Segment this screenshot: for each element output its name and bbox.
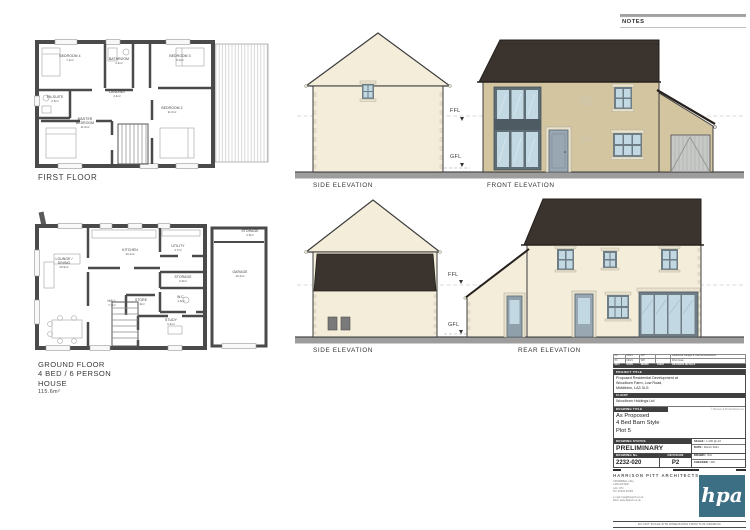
rear-leanto-door (504, 293, 525, 337)
drawing-status-value: PRELIMINARY (614, 444, 691, 453)
rear-elevation-label: REAR ELEVATION (518, 347, 581, 354)
rear-door (572, 291, 596, 337)
garage-roof-plane (314, 254, 436, 291)
room-label: LOUNGE / DINING20.9m² (51, 258, 77, 269)
ground-floor-plan-drawing (35, 212, 267, 351)
drawing-no-value: 2232-020 (614, 458, 659, 466)
front-elevation-drawing (477, 40, 717, 172)
ffl-label-mid: FFL (448, 272, 458, 278)
checked-cell: CHECKED : SW (692, 460, 745, 465)
project-title-text: Proposed Residential Development at Wood… (614, 375, 745, 394)
front-door (546, 127, 571, 172)
side-elevation-mid-drawing (305, 200, 442, 337)
revision-header-row: REV DATE DRWN CHKD REVISION DETAILS (614, 363, 746, 367)
side-opening (328, 317, 337, 330)
room-label: STORAGE0.9m² (170, 276, 196, 283)
room-label: BEDROOM 47.1m² (53, 55, 87, 62)
two-storey-glazing (494, 87, 541, 170)
front-window-first-floor (612, 84, 634, 112)
room-label: HALL7.4m² (101, 300, 123, 307)
room-label: EN-SUITE2.6m² (42, 96, 68, 103)
first-floor-title: FIRST FLOOR (38, 173, 97, 182)
hpa-logo: hpa (699, 475, 745, 517)
gfl-marker-top (460, 163, 464, 167)
gable-window (360, 81, 376, 102)
fold-marks (613, 469, 746, 473)
gf-total-area: 115.6m² (38, 389, 111, 396)
gf-title-line2: 4 BED / 6 PERSON (38, 369, 111, 378)
garage-plan (212, 228, 266, 346)
main-roof (479, 40, 659, 82)
copyright-note: © Harrison & Pitt Architects Ltd (668, 407, 745, 412)
side-opening (341, 317, 350, 330)
rear-roof (524, 199, 701, 245)
client-name: Woodburn Holdings Ltd (614, 398, 745, 406)
room-label: STUDY6.4m² (160, 319, 182, 326)
drawing-title-text: As Proposed 4 Bed Barn Style Plot 5 (614, 412, 745, 438)
side-elevation-top-label: SIDE ELEVATION (313, 182, 373, 189)
gf-title-line3: HOUSE (38, 379, 111, 388)
notes-title: NOTES (622, 19, 644, 25)
gfl-label-mid: GFL (448, 322, 459, 328)
room-label: W.C.1.5m² (171, 296, 191, 303)
date-cell: DATE : March 2021 (692, 445, 745, 450)
room-label: STORE1.9m² (130, 299, 152, 306)
rear-gf-window (605, 292, 631, 321)
room-label: MASTER BEDROOM11.9m² (70, 118, 100, 129)
rear-bifold-doors (637, 288, 700, 337)
gfl-label-top: GFL (450, 154, 461, 160)
room-label: LANDING4.4m² (104, 91, 130, 98)
gfl-marker-mid (459, 330, 463, 334)
architect-block: HARRISON PITT ARCHITECTS CROMWELL HILL L… (613, 473, 746, 519)
flue (39, 212, 47, 226)
room-label: STORAGE2.8m² (237, 230, 263, 237)
front-window-ground-floor (611, 130, 644, 160)
gf-title-line1: GROUND FLOOR (38, 360, 111, 369)
side-elevation-top-drawing (305, 33, 452, 172)
ground-floor-title: GROUND FLOOR 4 BED / 6 PERSON HOUSE 115.… (38, 360, 111, 396)
room-label: KITCHEN10.4m² (117, 249, 143, 256)
title-block: P2 03/21 WH - Additional Garage & Intern… (613, 354, 746, 528)
front-garage (657, 90, 717, 172)
room-label: BATHROOM4.4m² (106, 58, 132, 65)
room-label: BEDROOM 39.0m² (163, 55, 197, 62)
room-label: UTILITY4.7m² (166, 245, 190, 252)
ffl-marker-top (460, 117, 464, 121)
ffl-marker-mid (459, 280, 463, 284)
side-elevation-mid-label: SIDE ELEVATION (313, 347, 373, 354)
rear-elevation-drawing (464, 199, 704, 337)
disclaimer-text: DO NOT SCALE SITE DIMENSIONS FROM THIS D… (613, 521, 746, 528)
ffl-label-top: FFL (450, 108, 460, 114)
revision-value: P2 (660, 458, 691, 466)
drawing-title-bar: DRAWING TITLE (614, 407, 668, 412)
drawing-sheet: NOTES FIRST FLOOR GROUND FLOOR 4 BED / 6… (0, 0, 750, 530)
front-elevation-label: FRONT ELEVATION (487, 182, 555, 189)
deck-hatch (215, 44, 268, 162)
room-label: GARAGE16.4m² (227, 271, 253, 278)
revision-table: P2 03/21 WH - Additional Garage & Intern… (613, 354, 746, 368)
room-label: BEDROOM 211.0m² (155, 107, 189, 114)
